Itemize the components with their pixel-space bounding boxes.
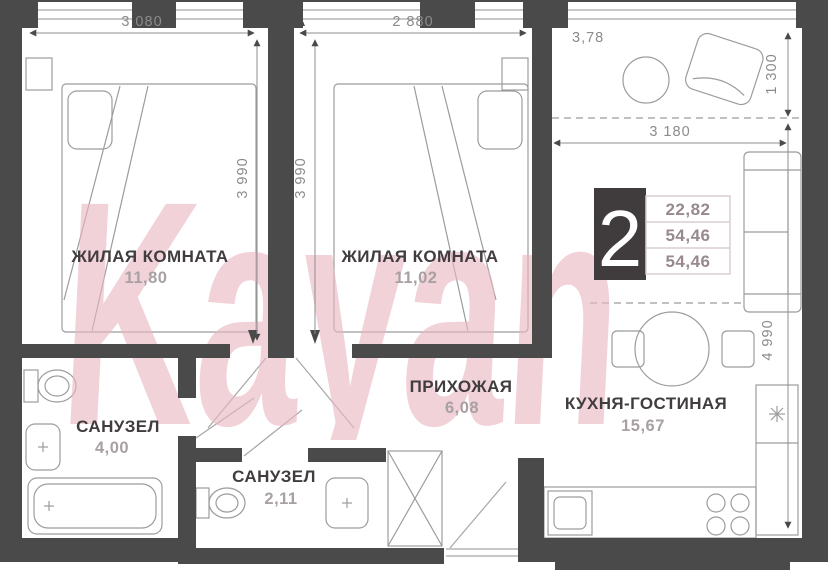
dim-kitchen-width: 3 180 <box>649 124 690 140</box>
wall-bottom-bath2 <box>186 548 444 564</box>
door-entry <box>450 482 506 548</box>
pouf-table-icon <box>623 57 669 103</box>
bathroom1-area: 4,00 <box>95 439 129 457</box>
bathtub-icon <box>28 478 162 534</box>
wall-bottom-bath1 <box>0 538 196 562</box>
wardrobe-icon <box>388 451 442 546</box>
wall-bedroom2-kitchen <box>532 28 552 358</box>
wall-bottom-step <box>555 558 790 570</box>
stove-icon <box>707 494 749 535</box>
wall-kitchen-step <box>518 458 544 548</box>
badge-room-count: 2 <box>598 194 643 283</box>
dim-bedroom1-width: 3 080 <box>121 14 162 30</box>
vent-fan-icon <box>769 406 785 422</box>
dim-bedroom1-depth: 3 990 <box>235 157 251 198</box>
unit-info-badge: 2 22,82 54,46 54,46 <box>594 188 730 283</box>
hallway-area: 6,08 <box>445 399 479 417</box>
floorplan-svg: Kayan <box>0 0 828 585</box>
wall-between-bedrooms <box>268 28 294 358</box>
dim-bedroom2-depth: 3 990 <box>293 157 309 198</box>
wall-bedroom1-bottom <box>0 344 230 358</box>
kitchen-counter <box>544 487 756 538</box>
toilet-2-icon <box>196 488 245 518</box>
armchair-icon <box>683 31 766 107</box>
bathroom1-name: САНУЗЕЛ <box>76 417 160 436</box>
bedroom1-name: ЖИЛАЯ КОМНАТА <box>71 247 229 266</box>
washbasin-1-icon <box>26 424 60 470</box>
bathroom2-name: САНУЗЕЛ <box>232 467 316 486</box>
chair-right-icon <box>722 331 754 367</box>
dim-loggia-depth: 1 300 <box>764 53 780 94</box>
kitchen-living-area: 15,67 <box>621 417 665 435</box>
badge-area-full: 54,46 <box>665 252 710 271</box>
wall-bedroom2-bottom <box>352 344 552 358</box>
wall-left <box>0 0 22 562</box>
hallway-name: ПРИХОЖАЯ <box>410 377 513 396</box>
kitchen-tall-unit <box>756 385 798 535</box>
dim-bedroom2-width: 2 880 <box>392 14 433 30</box>
dining-table-icon <box>635 312 709 386</box>
bedroom1-area: 11,80 <box>125 269 168 287</box>
floorplan-image: Kayan <box>0 0 828 585</box>
loggia-area-label: 3,78 <box>572 30 604 46</box>
washbasin-2-icon <box>326 478 368 528</box>
wall-bath1-right-upper <box>178 358 196 398</box>
bedroom2-name: ЖИЛАЯ КОМНАТА <box>341 247 499 266</box>
badge-area-total: 54,46 <box>665 226 710 245</box>
dim-kitchen-depth: 4 990 <box>760 319 776 360</box>
nightstand-2 <box>502 58 528 90</box>
badge-area-living: 22,82 <box>665 200 710 219</box>
kitchen-living-name: КУХНЯ-ГОСТИНАЯ <box>565 394 727 413</box>
wall-bath2-top-left <box>186 448 242 462</box>
nightstand-1 <box>26 58 52 90</box>
window-loggia <box>568 2 796 28</box>
bedroom2-area: 11,02 <box>395 269 438 287</box>
wall-right <box>802 0 828 562</box>
bathroom2-area: 2,11 <box>264 490 297 508</box>
pillow-icon <box>478 91 522 149</box>
sofa-icon <box>744 152 801 312</box>
wall-bath2-top-right <box>308 448 386 462</box>
